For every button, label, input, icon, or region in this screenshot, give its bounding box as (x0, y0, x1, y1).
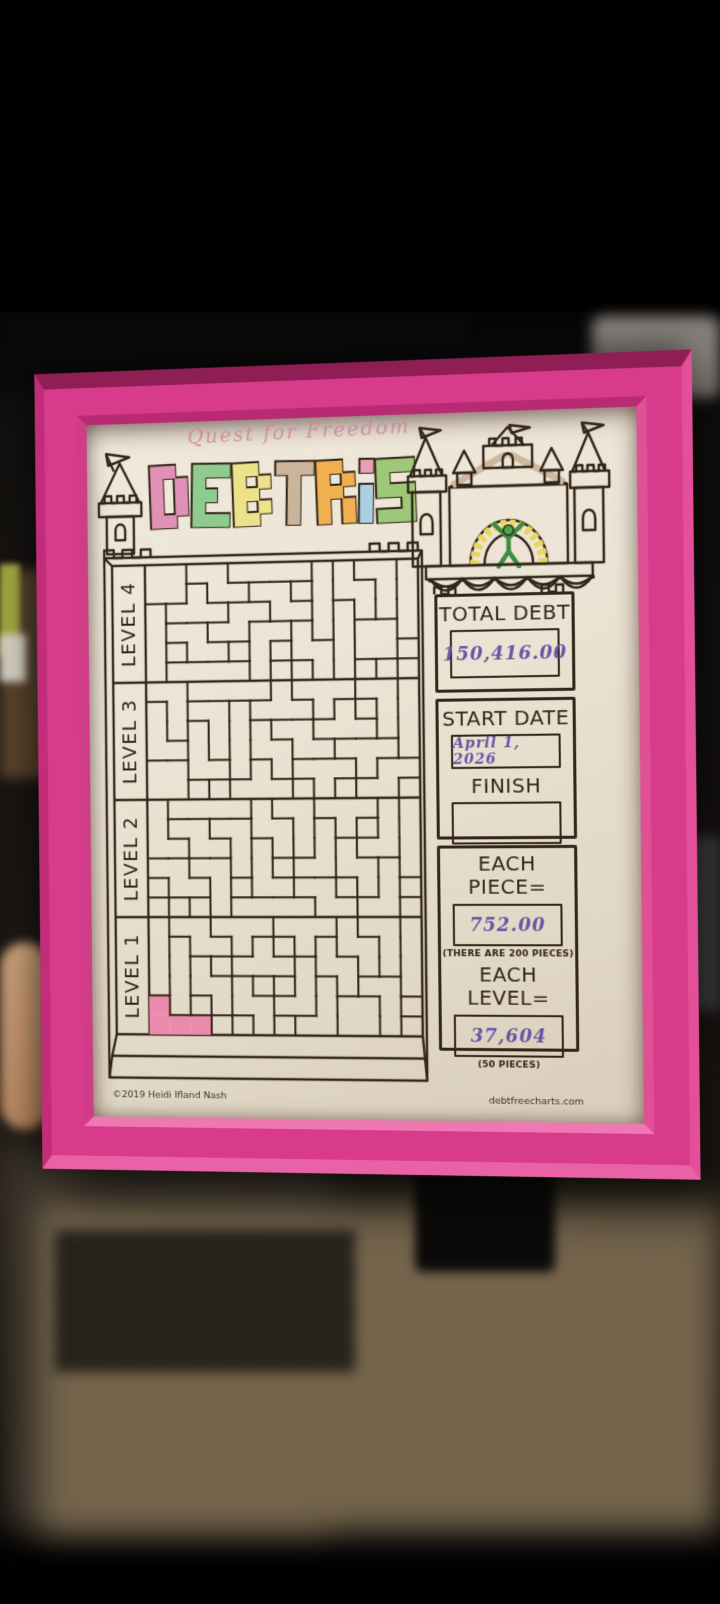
each-piece-value-box: 752.00 (453, 904, 563, 947)
title-letter-D (150, 465, 189, 529)
tetris-board: LEVEL 4 LEVEL 3 LEVEL 2 LEVEL 1 (100, 540, 431, 1086)
start-date-value: April 1, 2026 (453, 734, 559, 768)
level-label: LEVEL 4 (118, 581, 139, 667)
title-letter-B (233, 462, 272, 526)
chart-paper: Quest for Freedom (87, 407, 644, 1124)
each-level-label: EACH LEVEL= (461, 963, 555, 1010)
completed-piece (170, 1015, 191, 1035)
stick-figure-icon (494, 524, 523, 567)
flag-icon (509, 424, 529, 433)
total-debt-value: 150,416.00 (442, 642, 567, 665)
handwritten-quest-title: Quest for Freedom (187, 413, 411, 448)
each-piece-value: 752.00 (469, 914, 545, 935)
start-date-value-box: April 1, 2026 (451, 733, 561, 769)
website-credit: debtfreecharts.com (489, 1095, 584, 1107)
castle-side-tower (570, 422, 611, 563)
copyright-credit: ©2019 Heidi Ifland Nash (113, 1089, 227, 1101)
level-label: LEVEL 3 (120, 699, 141, 785)
background-clutter (0, 634, 26, 682)
each-level-note: (50 PIECES) (442, 1060, 576, 1071)
tetris-level-grid (146, 678, 420, 800)
tetris-level-grid (145, 559, 419, 683)
photo-scene: Quest for Freedom (0, 0, 720, 1604)
tetris-level-grid (148, 917, 422, 1037)
info-panel: TOTAL DEBT 150,416.00 START DATE April 1… (434, 591, 579, 1052)
level-label: LEVEL 2 (121, 816, 142, 902)
dates-section: START DATE April 1, 2026 FINISH (435, 697, 577, 840)
level-label: LEVEL 1 (122, 933, 143, 1019)
completed-piece (191, 1015, 212, 1035)
start-date-label: START DATE (438, 706, 572, 730)
piece-level-section: EACH PIECE= 752.00 (THERE ARE 200 PIECES… (437, 845, 579, 1052)
debtris-title (151, 458, 415, 528)
each-piece-label: EACH PIECE= (460, 852, 554, 899)
each-piece-note: (THERE ARE 200 PIECES) (441, 949, 575, 959)
finish-label: FINISH (439, 774, 573, 797)
castle-side-tower (407, 427, 447, 567)
picture-frame: Quest for Freedom (34, 349, 700, 1179)
total-debt-value-box: 150,416.00 (450, 628, 560, 678)
castle-tower-illustration (93, 449, 152, 561)
title-letter-T (275, 462, 313, 525)
total-debt-section: TOTAL DEBT 150,416.00 (434, 591, 575, 693)
total-debt-label: TOTAL DEBT (437, 600, 571, 625)
each-level-value-box: 37,604 (454, 1015, 564, 1058)
title-letter-R (316, 460, 356, 524)
each-level-value: 37,604 (471, 1025, 547, 1047)
title-letter-i (359, 460, 372, 523)
tetris-level-grid (147, 797, 421, 917)
title-letter-E (192, 464, 229, 526)
completed-piece (149, 995, 170, 1015)
finish-value-box (452, 801, 562, 844)
completed-piece (149, 1015, 170, 1035)
castle-illustration (404, 420, 613, 599)
cables (55, 1230, 355, 1372)
